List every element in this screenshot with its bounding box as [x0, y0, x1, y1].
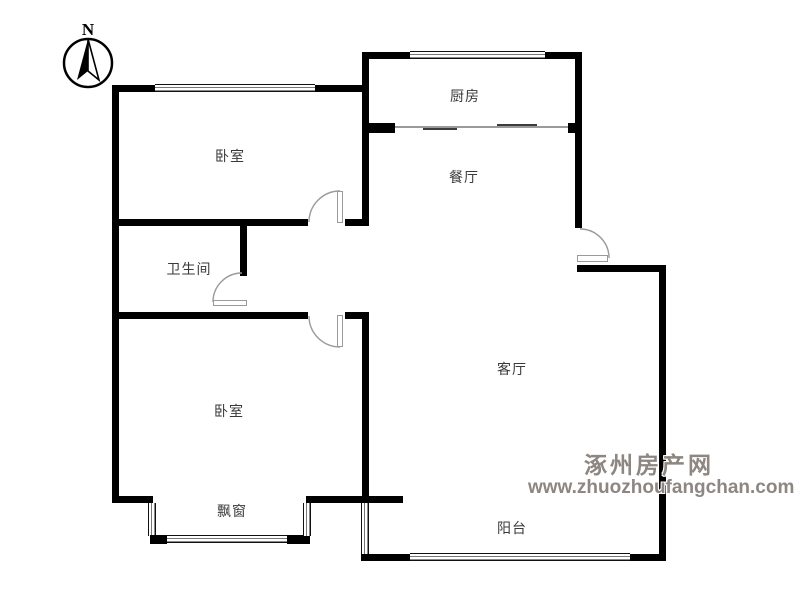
sliding-door-track: [395, 126, 568, 128]
window-bay-bottom: [167, 535, 287, 543]
watermark-site-url: www.zhuozhoufangchan.com: [528, 478, 770, 499]
compass-needle-light: [88, 39, 99, 80]
wall-segment: [362, 52, 410, 59]
room-label-dining: 餐厅: [449, 167, 479, 187]
wall-segment: [112, 312, 308, 319]
sliding-door-panel: [423, 128, 457, 130]
door-leaf-bedroom-top: [337, 191, 343, 223]
door-leaf-bathroom: [213, 300, 247, 306]
wall-bathroom-stub: [240, 219, 247, 276]
wall-center-lower: [362, 312, 369, 503]
wall-segment: [568, 123, 582, 133]
door-arc-bedroom-bottom: [309, 316, 340, 347]
wall-center-upper: [362, 52, 369, 226]
wall-left-outer: [112, 85, 119, 503]
wall-segment: [345, 219, 369, 226]
door-leaf-entry: [577, 255, 608, 262]
door-arc-bedroom-top: [309, 191, 340, 222]
window-bay-right: [303, 503, 311, 536]
room-label-bathroom: 卫生间: [167, 259, 212, 279]
door-arc-bathroom: [213, 273, 242, 302]
window-balcony-left: [361, 503, 369, 554]
wall-entry-jog: [577, 265, 666, 272]
window-kitchen-top: [410, 51, 545, 59]
wall-segment: [630, 554, 666, 561]
wall-segment: [361, 554, 410, 561]
wall-segment: [306, 496, 403, 503]
room-label-living: 客厅: [497, 359, 527, 379]
wall-bay-corner: [150, 535, 167, 544]
wall-bay-corner: [287, 535, 310, 544]
watermark-site-name: 涿州房产网: [528, 453, 770, 478]
floor-plan: N 厨房 餐厅 卧室 卫生间 客厅 卧室 飘窗 阳台 涿州房产网 www.zhu…: [0, 0, 800, 600]
room-label-kitchen: 厨房: [450, 86, 480, 106]
window-bedroom-top: [155, 84, 315, 92]
wall-living-right: [659, 265, 666, 561]
compass-north-label: N: [82, 20, 94, 40]
room-label-bedroom-bottom: 卧室: [214, 401, 244, 421]
compass-circle: [64, 39, 112, 87]
wall-segment: [362, 123, 395, 133]
wall-segment: [112, 219, 308, 226]
wall-segment: [112, 496, 153, 503]
window-balcony-bottom: [410, 553, 630, 561]
watermark: 涿州房产网 www.zhuozhoufangchan.com: [528, 453, 770, 499]
room-label-bedroom-top: 卧室: [215, 146, 245, 166]
wall-segment: [315, 85, 369, 92]
wall-dining-right: [575, 52, 582, 228]
window-bay-left: [148, 503, 156, 536]
wall-segment: [345, 312, 369, 319]
door-leaf-bedroom-bottom: [337, 315, 343, 347]
compass-needle-dark: [77, 39, 88, 80]
room-label-bay-window: 飘窗: [217, 501, 247, 521]
sliding-door-panel: [497, 124, 537, 126]
door-arc-entry: [580, 229, 609, 258]
room-label-balcony: 阳台: [497, 518, 527, 538]
